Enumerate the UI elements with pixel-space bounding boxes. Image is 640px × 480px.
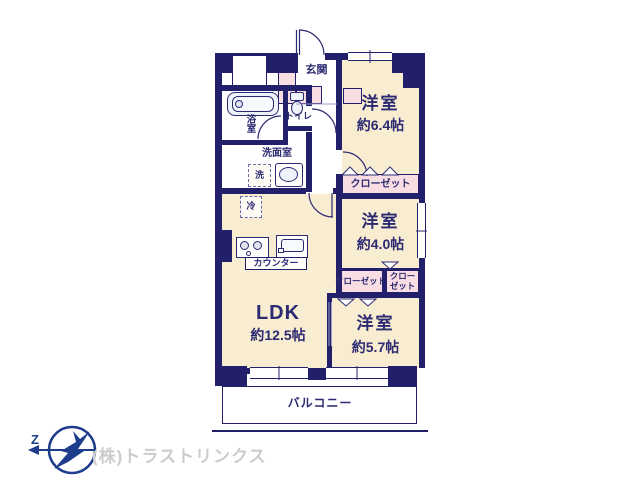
wall-pillar [388,366,417,386]
bath-label: 浴室 [244,114,254,133]
counter-strip: カウンター [245,257,307,270]
room-name: 洋室 [342,95,419,114]
counter-label: カウンター [253,259,298,269]
wall-segment [336,194,419,199]
closet-label: クローゼット [342,179,419,190]
washroom-label: 洗面室 [252,148,302,159]
sink-basin-icon [281,239,304,252]
wall-segment [306,88,312,106]
room-size: 約5.7帖 [332,340,419,355]
fridge-box: 冷 [240,196,262,218]
wall-segment [306,132,312,192]
window-balcony [326,367,388,379]
company-name: (株)トラストリンクス [92,442,266,467]
room-western-4-0 [342,199,419,268]
room-name: 洋室 [332,315,419,334]
entrance-door-leaf [297,30,300,55]
wall-segment [308,368,326,380]
window-balcony [250,367,308,379]
floorplan-canvas: 洗 冷 カウンター 玄関 トイレ 浴室 洗面室 洋室 約6.4帖 洋室 約4.0… [0,0,640,480]
wall-segment [325,53,348,60]
stove-burner-icon [240,241,249,250]
compass-letter: Z [31,432,39,447]
wall-pillar [215,230,232,262]
toilet-tank-icon [290,92,304,101]
building-outline [212,430,428,432]
room-size: 約4.0帖 [342,237,419,252]
toilet-label: トイレ [285,112,311,122]
room-name: 洋室 [342,213,419,232]
toilet-door-arc [312,109,336,133]
balcony-label: バルコニー [270,397,370,410]
wall-segment [342,268,419,270]
bath-door-arc [258,116,281,139]
wall-segment [327,293,419,298]
wall-segment [222,188,306,194]
room-size: 約12.5帖 [228,328,328,343]
washing-machine-label: 洗 [255,171,264,181]
washing-machine-box: 洗 [248,164,271,187]
closet-label: クローゼット [335,277,384,286]
entrance-door-arc [299,30,324,55]
stove-knob-icon [246,251,251,256]
faucet-icon [278,248,284,253]
wall-segment [215,53,222,386]
stove-burner-icon [253,241,262,250]
entrance-label: 玄関 [296,64,337,76]
room-name: LDK [228,302,328,324]
room-size: 約6.4帖 [342,118,419,133]
wall-segment [283,126,312,131]
washbasin-bowl-icon [279,167,298,182]
window [348,52,392,61]
wall-segment [222,140,288,145]
closet-label: ゼット [386,282,419,291]
bathtub-drain-icon [235,100,243,108]
pipe-space-box [232,55,267,86]
closet-label: クロー [386,272,419,281]
fridge-label: 冷 [246,202,255,212]
wall-segment [222,368,250,374]
